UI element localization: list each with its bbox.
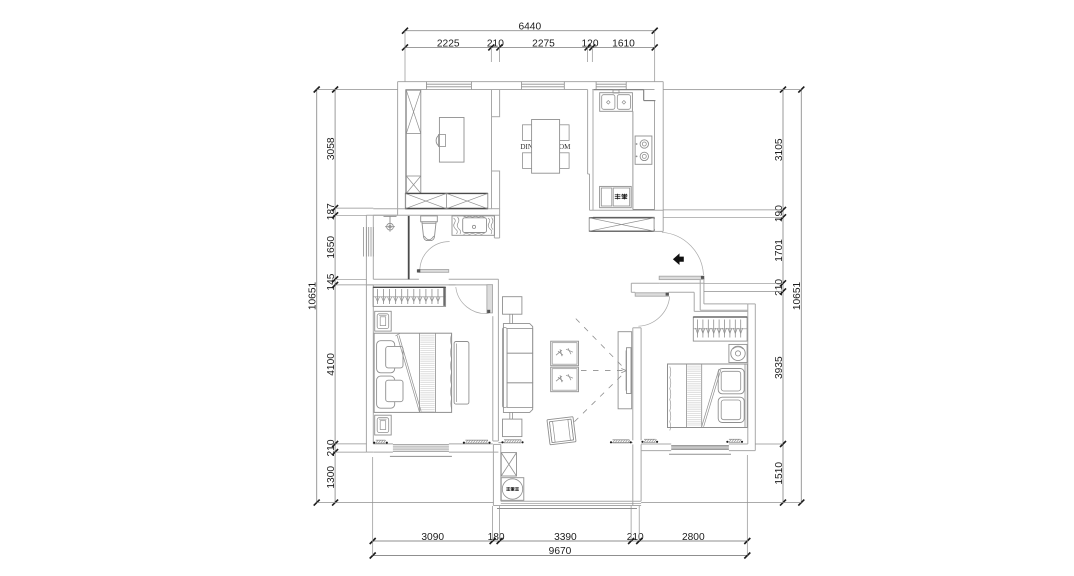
svg-text:120: 120 — [582, 38, 599, 49]
svg-text:2275: 2275 — [532, 38, 555, 49]
svg-text:180: 180 — [488, 532, 505, 543]
svg-text:3090: 3090 — [421, 532, 444, 543]
svg-text:210: 210 — [487, 38, 504, 49]
svg-text:6440: 6440 — [518, 22, 541, 33]
svg-text:10651: 10651 — [308, 282, 319, 311]
svg-text:210: 210 — [326, 439, 337, 456]
svg-text:190: 190 — [774, 205, 785, 222]
svg-text:3058: 3058 — [326, 137, 337, 160]
svg-text:1300: 1300 — [326, 466, 337, 489]
svg-text:3935: 3935 — [774, 356, 785, 379]
svg-text:187: 187 — [326, 203, 337, 220]
svg-text:1650: 1650 — [326, 236, 337, 259]
svg-text:3390: 3390 — [554, 532, 577, 543]
svg-text:10651: 10651 — [792, 282, 803, 311]
svg-text:210: 210 — [627, 532, 644, 543]
svg-text:3105: 3105 — [774, 138, 785, 161]
svg-text:2225: 2225 — [437, 38, 460, 49]
svg-text:145: 145 — [326, 273, 337, 290]
svg-text:2800: 2800 — [682, 532, 705, 543]
svg-text:4100: 4100 — [326, 353, 337, 376]
svg-text:9670: 9670 — [549, 546, 572, 557]
svg-text:1510: 1510 — [774, 462, 785, 485]
svg-text:210: 210 — [774, 279, 785, 296]
svg-text:1610: 1610 — [612, 38, 635, 49]
svg-text:1701: 1701 — [774, 239, 785, 262]
